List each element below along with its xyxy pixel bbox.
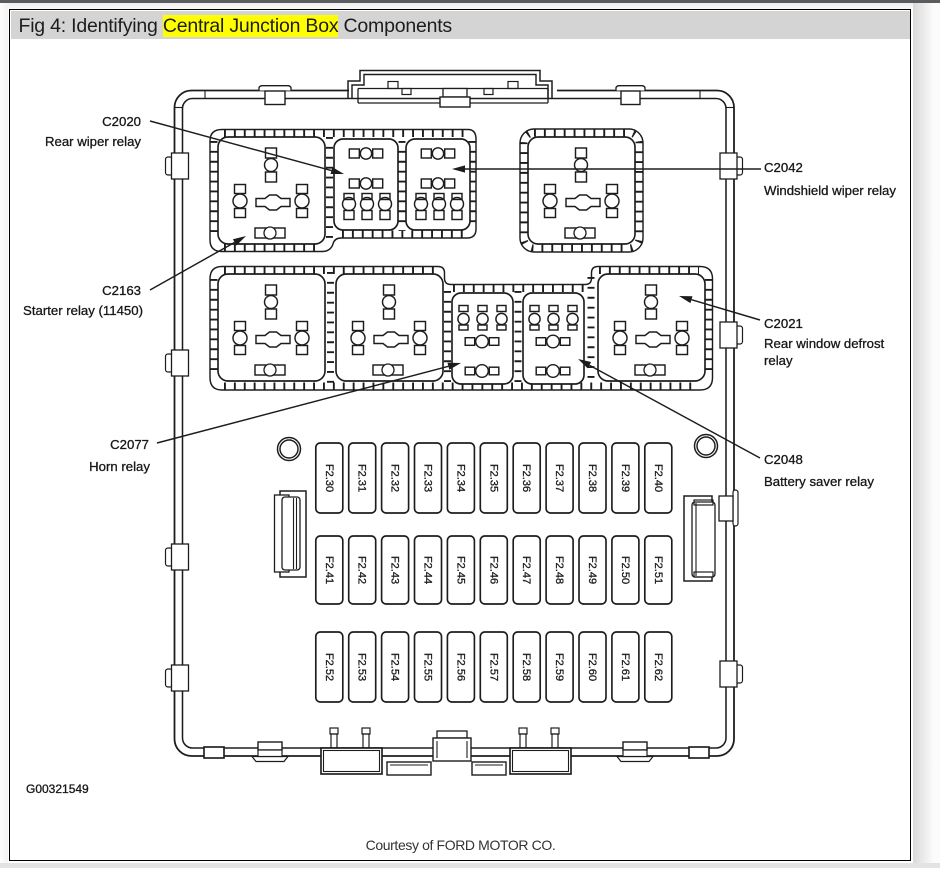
svg-text:F2.60: F2.60 (586, 653, 598, 681)
svg-text:F2.49: F2.49 (586, 556, 598, 584)
svg-text:F2.54: F2.54 (389, 653, 401, 681)
svg-text:C2020: C2020 (102, 114, 141, 129)
svg-text:F2.31: F2.31 (356, 464, 368, 492)
svg-text:F2.43: F2.43 (389, 556, 401, 584)
svg-text:G00321549: G00321549 (26, 782, 89, 796)
svg-text:F2.46: F2.46 (487, 556, 499, 584)
svg-text:C2163: C2163 (102, 283, 141, 298)
svg-text:Battery saver relay: Battery saver relay (764, 474, 874, 489)
svg-text:F2.40: F2.40 (652, 464, 664, 492)
svg-text:F2.36: F2.36 (520, 464, 532, 492)
svg-text:F2.53: F2.53 (356, 653, 368, 681)
svg-text:F2.50: F2.50 (619, 556, 631, 584)
svg-text:F2.62: F2.62 (652, 653, 664, 681)
svg-text:Windshield wiper relay: Windshield wiper relay (764, 183, 896, 198)
svg-text:F2.38: F2.38 (586, 464, 598, 492)
svg-text:F2.48: F2.48 (553, 556, 565, 584)
svg-text:F2.35: F2.35 (487, 464, 499, 492)
svg-text:F2.45: F2.45 (454, 556, 466, 584)
svg-text:F2.44: F2.44 (422, 556, 434, 584)
svg-text:F2.42: F2.42 (356, 556, 368, 584)
svg-text:F2.30: F2.30 (323, 464, 335, 492)
svg-text:F2.52: F2.52 (323, 653, 335, 681)
svg-text:Rear window defrost: Rear window defrost (764, 336, 885, 351)
svg-text:Rear wiper relay: Rear wiper relay (45, 134, 141, 149)
svg-text:relay: relay (764, 353, 793, 368)
svg-text:Starter relay (11450): Starter relay (11450) (23, 303, 143, 318)
svg-text:F2.37: F2.37 (553, 464, 565, 492)
svg-text:F2.58: F2.58 (520, 653, 532, 681)
svg-text:F2.32: F2.32 (389, 464, 401, 492)
svg-text:F2.33: F2.33 (422, 464, 434, 492)
svg-text:C2048: C2048 (764, 452, 803, 467)
svg-text:F2.61: F2.61 (619, 653, 631, 681)
svg-text:F2.39: F2.39 (619, 464, 631, 492)
svg-text:F2.55: F2.55 (422, 653, 434, 681)
svg-text:C2077: C2077 (110, 437, 149, 452)
svg-text:F2.57: F2.57 (487, 653, 499, 681)
svg-text:C2021: C2021 (764, 316, 803, 331)
svg-text:C2042: C2042 (764, 160, 803, 175)
svg-text:Horn relay: Horn relay (89, 459, 150, 474)
svg-text:F2.56: F2.56 (454, 653, 466, 681)
svg-text:F2.51: F2.51 (652, 556, 664, 584)
svg-text:F2.47: F2.47 (520, 556, 532, 584)
svg-text:F2.34: F2.34 (454, 464, 466, 492)
svg-text:F2.41: F2.41 (323, 556, 335, 584)
svg-text:F2.59: F2.59 (553, 653, 565, 681)
